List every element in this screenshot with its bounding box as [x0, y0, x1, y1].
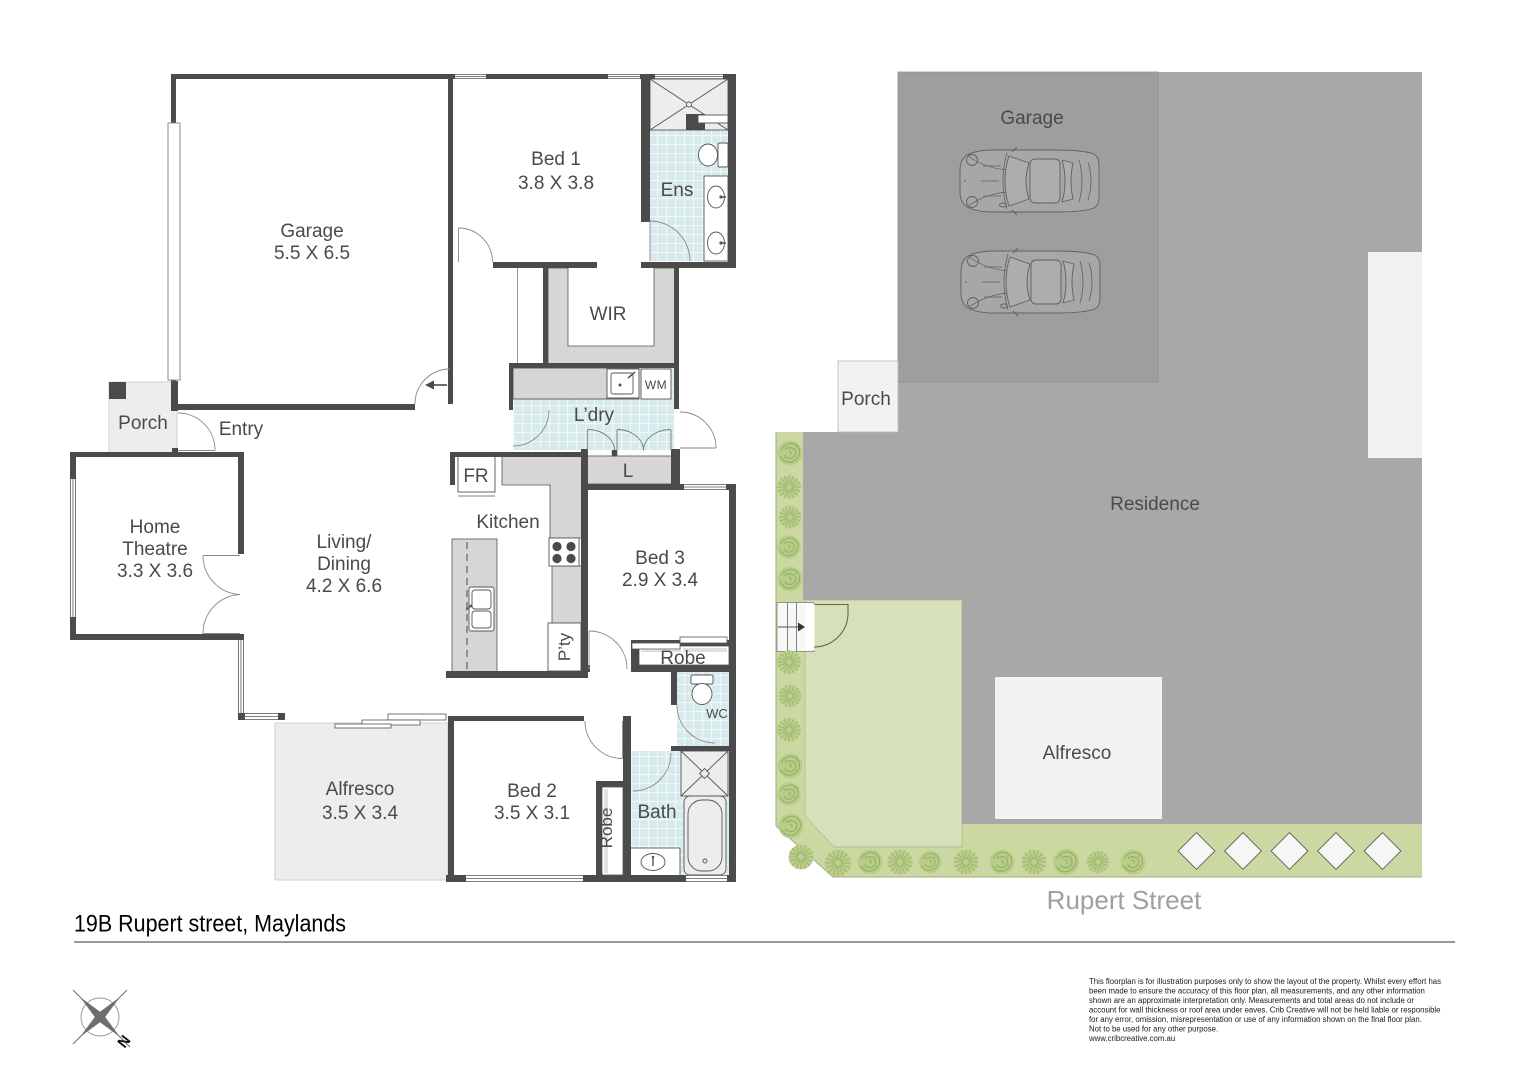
svg-text:Porch: Porch [118, 413, 168, 434]
svg-text:Garage: Garage [280, 221, 343, 242]
svg-text:19B Rupert street, Maylands: 19B Rupert street, Maylands [74, 911, 346, 938]
svg-text:3.3 X 3.6: 3.3 X 3.6 [117, 561, 193, 582]
svg-text:Bed 1: Bed 1 [531, 149, 581, 170]
svg-text:Porch: Porch [841, 389, 891, 410]
svg-text:Entry: Entry [219, 419, 264, 440]
svg-text:WC: WC [706, 706, 728, 721]
svg-text:4.2 X 6.6: 4.2 X 6.6 [306, 576, 382, 597]
svg-text:Home: Home [130, 517, 181, 538]
svg-text:Bath: Bath [637, 802, 676, 823]
svg-text:WIR: WIR [590, 304, 627, 325]
svg-text:Residence: Residence [1110, 494, 1200, 515]
svg-text:Dining: Dining [317, 554, 371, 575]
svg-text:P’ty: P’ty [555, 632, 574, 661]
svg-text:3.5 X 3.1: 3.5 X 3.1 [494, 803, 570, 824]
svg-text:L: L [623, 461, 634, 482]
svg-text:www.cribcreative.com.au: www.cribcreative.com.au [1088, 1034, 1175, 1043]
svg-text:Alfresco: Alfresco [1043, 743, 1112, 764]
svg-text:Garage: Garage [1000, 108, 1063, 129]
svg-text:WM: WM [645, 378, 667, 392]
svg-text:L’dry: L’dry [574, 405, 615, 426]
svg-text:2.9 X 3.4: 2.9 X 3.4 [622, 570, 698, 591]
svg-text:Kitchen: Kitchen [476, 512, 539, 533]
svg-text:Robe: Robe [597, 808, 616, 849]
svg-text:account for wall thickness or: account for wall thickness or roof area … [1089, 1006, 1440, 1015]
svg-text:N: N [113, 1032, 133, 1051]
svg-text:Robe: Robe [660, 648, 705, 669]
svg-text:Not to be used for any other p: Not to be used for any other purpose. [1089, 1025, 1218, 1034]
svg-text:for any error, omission, misre: for any error, omission, misrepresentati… [1089, 1015, 1422, 1024]
svg-text:This floorplan is for illustra: This floorplan is for illustration purpo… [1089, 977, 1441, 986]
svg-text:Bed 2: Bed 2 [507, 781, 557, 802]
svg-text:Theatre: Theatre [122, 539, 187, 560]
svg-text:FR: FR [463, 466, 488, 487]
svg-text:shown are an approximate inter: shown are an approximate interpretation … [1089, 996, 1414, 1005]
svg-text:3.8 X 3.8: 3.8 X 3.8 [518, 173, 594, 194]
svg-text:Alfresco: Alfresco [326, 779, 395, 800]
svg-text:Rupert Street: Rupert Street [1047, 885, 1202, 915]
svg-text:3.5 X 3.4: 3.5 X 3.4 [322, 803, 398, 824]
svg-text:Bed 3: Bed 3 [635, 548, 685, 569]
svg-text:Ens: Ens [661, 180, 694, 201]
svg-text:been made to ensure the accura: been made to ensure the accuracy of this… [1089, 987, 1425, 996]
svg-text:Living/: Living/ [317, 532, 373, 553]
svg-text:5.5 X 6.5: 5.5 X 6.5 [274, 243, 350, 264]
